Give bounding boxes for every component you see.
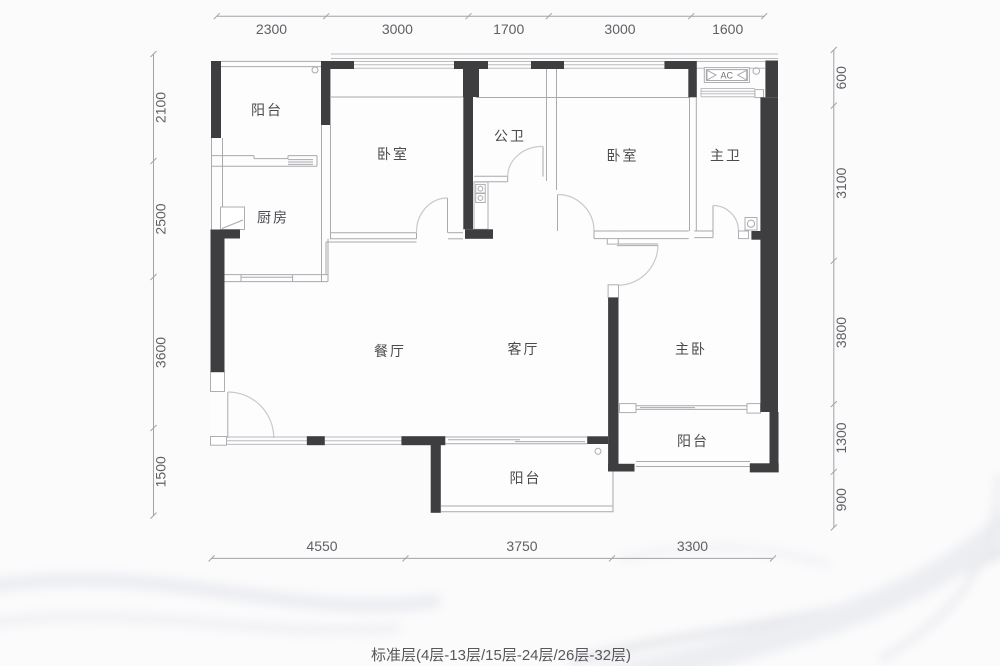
svg-text:餐厅: 餐厅: [374, 343, 406, 359]
svg-text:1500: 1500: [153, 456, 169, 487]
svg-text:2500: 2500: [153, 203, 169, 234]
svg-text:阳台: 阳台: [251, 102, 283, 118]
svg-text:客厅: 客厅: [508, 341, 540, 357]
svg-text:3800: 3800: [833, 317, 849, 348]
svg-text:1700: 1700: [493, 21, 524, 37]
svg-text:3750: 3750: [506, 538, 537, 554]
svg-text:卧室: 卧室: [607, 148, 639, 164]
svg-text:3100: 3100: [833, 167, 849, 198]
svg-text:900: 900: [833, 488, 849, 512]
svg-text:AC: AC: [721, 71, 734, 81]
svg-text:卧室: 卧室: [377, 146, 409, 162]
svg-text:3000: 3000: [604, 21, 635, 37]
svg-text:2300: 2300: [256, 21, 287, 37]
svg-text:1300: 1300: [833, 422, 849, 453]
svg-text:4550: 4550: [306, 538, 337, 554]
svg-text:600: 600: [833, 66, 849, 90]
svg-text:3600: 3600: [153, 337, 169, 368]
svg-text:主卫: 主卫: [710, 148, 742, 164]
svg-text:1600: 1600: [712, 21, 743, 37]
svg-text:标准层(4层-13层/15层-24层/26层-32层): 标准层(4层-13层/15层-24层/26层-32层): [371, 647, 631, 664]
svg-text:3300: 3300: [677, 538, 708, 554]
svg-text:厨房: 厨房: [257, 210, 289, 226]
svg-text:2100: 2100: [153, 92, 169, 123]
svg-text:阳台: 阳台: [510, 470, 542, 486]
svg-text:阳台: 阳台: [677, 433, 709, 449]
svg-text:公卫: 公卫: [494, 128, 526, 144]
svg-text:3000: 3000: [382, 21, 413, 37]
svg-text:主卧: 主卧: [675, 341, 707, 357]
